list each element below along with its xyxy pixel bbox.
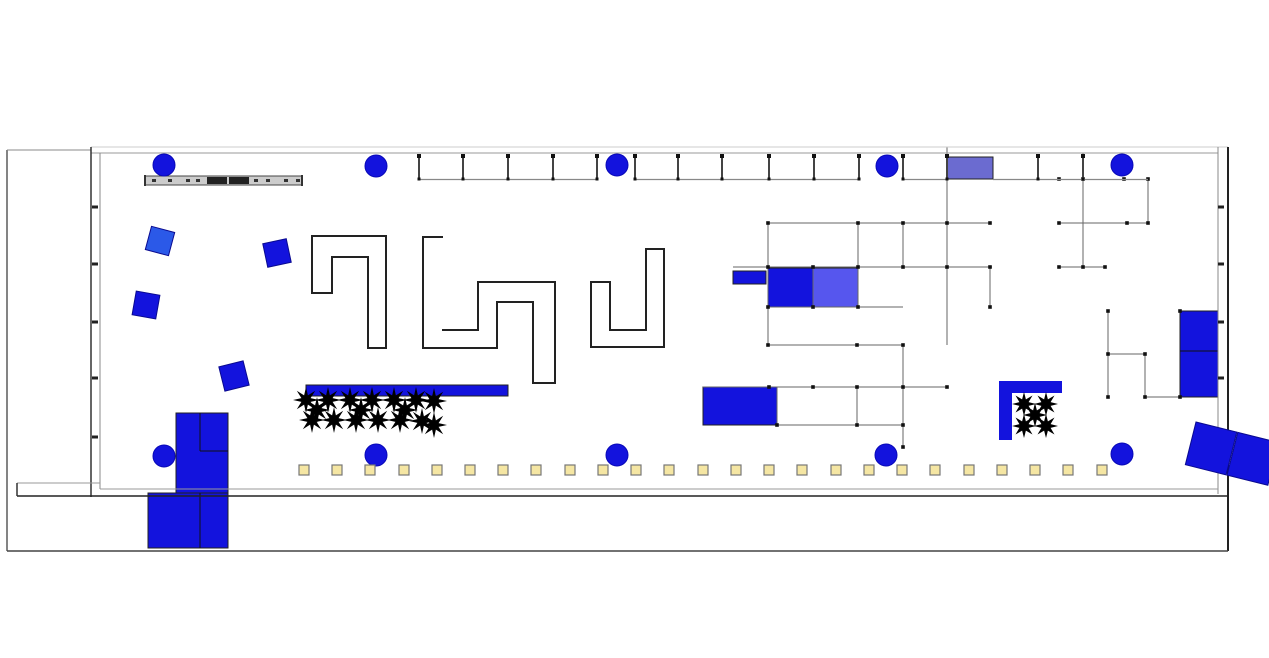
column-circle[interactable] xyxy=(153,154,175,176)
floor-plan-svg[interactable] xyxy=(0,0,1269,658)
service-bar-block xyxy=(229,177,249,184)
stall-tick-cap xyxy=(945,154,949,158)
yellow-marker xyxy=(365,465,375,475)
stall-tick-base xyxy=(813,178,816,181)
wall-tick xyxy=(1218,206,1224,209)
yellow-marker xyxy=(498,465,508,475)
grid-node xyxy=(1143,352,1147,356)
stall-tick-base xyxy=(418,178,421,181)
grid-node xyxy=(1125,221,1129,225)
wall-tick xyxy=(92,206,98,209)
planter-bar[interactable] xyxy=(999,381,1062,393)
yellow-marker xyxy=(1063,465,1073,475)
grid-node xyxy=(1106,395,1110,399)
yellow-marker xyxy=(964,465,974,475)
stall-tick-base xyxy=(507,178,510,181)
stall-tick-cap xyxy=(551,154,555,158)
stall-tick-cap xyxy=(595,154,599,158)
stall-tick-cap xyxy=(676,154,680,158)
column-circle[interactable] xyxy=(606,154,628,176)
yellow-marker xyxy=(797,465,807,475)
stall-tick-cap xyxy=(633,154,637,158)
grid-node xyxy=(1178,309,1182,313)
service-bar-endcap xyxy=(144,175,146,186)
stall-tick-cap xyxy=(417,154,421,158)
service-bar-tick xyxy=(186,179,190,182)
grid-node xyxy=(856,221,860,225)
column-circle[interactable] xyxy=(1111,154,1133,176)
booth-lower-blue[interactable] xyxy=(703,387,777,425)
yellow-marker xyxy=(565,465,575,475)
grid-node xyxy=(1106,309,1110,313)
service-bar-tick xyxy=(266,179,270,182)
yellow-marker xyxy=(531,465,541,475)
grid-node xyxy=(855,385,859,389)
wall-tick xyxy=(1218,263,1224,266)
grid-node xyxy=(855,423,859,427)
grid-node xyxy=(856,265,860,269)
yellow-marker xyxy=(731,465,741,475)
platform-bar[interactable] xyxy=(306,385,508,396)
rotated-square[interactable] xyxy=(132,291,160,319)
service-bar-tick xyxy=(254,179,258,182)
service-bar-tick xyxy=(284,179,288,182)
wall-tick xyxy=(92,321,98,324)
grid-node xyxy=(901,343,905,347)
rotated-square[interactable] xyxy=(145,226,174,255)
service-bar-endcap xyxy=(301,175,303,186)
service-bar-tick xyxy=(296,179,300,182)
stall-tick-base xyxy=(768,178,771,181)
grid-node xyxy=(988,305,992,309)
grid-node xyxy=(855,343,859,347)
plant-symbol xyxy=(348,397,374,423)
plant-symbol xyxy=(421,388,447,414)
yellow-marker xyxy=(930,465,940,475)
yellow-marker xyxy=(664,465,674,475)
wall-tick xyxy=(92,436,98,439)
column-circle[interactable] xyxy=(153,445,175,467)
grid-node xyxy=(1103,265,1107,269)
column-circle[interactable] xyxy=(1111,443,1133,465)
rotated-square[interactable] xyxy=(263,239,291,267)
yellow-marker xyxy=(1097,465,1107,475)
booth-light-blue[interactable] xyxy=(813,268,858,307)
stall-tick-base xyxy=(1037,178,1040,181)
stall-tick-base xyxy=(721,178,724,181)
stall-tick-base xyxy=(946,178,949,181)
yellow-marker xyxy=(698,465,708,475)
service-bar-tick xyxy=(168,179,172,182)
grid-node xyxy=(1143,395,1147,399)
grid-node xyxy=(766,305,770,309)
yellow-marker xyxy=(897,465,907,475)
booth-small-bar[interactable] xyxy=(733,271,766,284)
grid-node xyxy=(901,385,905,389)
column-circle[interactable] xyxy=(876,155,898,177)
grid-node xyxy=(945,265,949,269)
service-bar-tick xyxy=(152,179,156,182)
plant-symbol xyxy=(1023,403,1047,427)
grid-node xyxy=(811,265,815,269)
grid-node xyxy=(766,343,770,347)
stall-tick-base xyxy=(1082,178,1085,181)
service-bar-tick xyxy=(196,179,200,182)
plant-symbol xyxy=(304,397,330,423)
grid-node xyxy=(945,221,949,225)
yellow-marker xyxy=(1030,465,1040,475)
grid-node xyxy=(988,221,992,225)
wall-tick xyxy=(92,377,98,380)
floor-markers-layer xyxy=(299,465,1107,475)
wall-tick xyxy=(1218,321,1224,324)
plant-symbol xyxy=(421,412,447,438)
grid-node xyxy=(901,423,905,427)
maze-walls-layer xyxy=(312,236,664,383)
grid-node xyxy=(811,305,815,309)
yellow-marker xyxy=(831,465,841,475)
yellow-marker xyxy=(997,465,1007,475)
grid-node xyxy=(1057,265,1061,269)
stall-tick-base xyxy=(596,178,599,181)
column-circle[interactable] xyxy=(875,444,897,466)
grid-node xyxy=(1057,221,1061,225)
floor-plan xyxy=(0,0,1269,658)
stall-tick-cap xyxy=(506,154,510,158)
column-circle[interactable] xyxy=(606,444,628,466)
booth-purple[interactable] xyxy=(947,157,993,179)
yellow-marker xyxy=(432,465,442,475)
grid-node xyxy=(766,221,770,225)
yellow-marker xyxy=(864,465,874,475)
grid-node xyxy=(1146,221,1150,225)
column-circle[interactable] xyxy=(365,155,387,177)
yellow-marker xyxy=(299,465,309,475)
stall-tick-base xyxy=(677,178,680,181)
grid-node xyxy=(901,265,905,269)
booth-dark-blue[interactable] xyxy=(768,268,813,307)
grid-node xyxy=(811,385,815,389)
service-bar-block xyxy=(207,177,227,184)
grid-node xyxy=(901,221,905,225)
stall-ladders-layer xyxy=(417,154,1148,181)
stall-tick-base xyxy=(462,178,465,181)
entrance-block-lower[interactable] xyxy=(148,493,228,548)
grid-node xyxy=(901,445,905,449)
grid-node xyxy=(988,265,992,269)
stall-tick-cap xyxy=(1036,154,1040,158)
service-bar-layer xyxy=(144,175,303,186)
rotated-square[interactable] xyxy=(219,361,249,391)
stall-tick-base xyxy=(858,178,861,181)
grid-node xyxy=(1106,352,1110,356)
maze-wall xyxy=(312,236,386,348)
stall-tick-cap xyxy=(901,154,905,158)
grid-node xyxy=(767,385,771,389)
wall-tick xyxy=(92,263,98,266)
grid-node xyxy=(1178,395,1182,399)
grid-node xyxy=(856,305,860,309)
stall-tick-cap xyxy=(461,154,465,158)
stall-tick-cap xyxy=(720,154,724,158)
entrance-block-upper[interactable] xyxy=(176,413,228,493)
grid-node xyxy=(1081,265,1085,269)
yellow-marker xyxy=(764,465,774,475)
yellow-marker xyxy=(399,465,409,475)
stall-tick-cap xyxy=(767,154,771,158)
grid-node xyxy=(766,265,770,269)
plant-symbol xyxy=(392,397,418,423)
grid-node xyxy=(945,385,949,389)
stall-tick-cap xyxy=(1081,154,1085,158)
column-circle[interactable] xyxy=(365,444,387,466)
wall-tick xyxy=(1218,377,1224,380)
stall-tick-base xyxy=(634,178,637,181)
stall-tick-cap xyxy=(812,154,816,158)
stall-tick-cap xyxy=(857,154,861,158)
grid-node xyxy=(775,423,779,427)
booth-right-double[interactable] xyxy=(1180,311,1218,397)
stall-tick-base xyxy=(552,178,555,181)
yellow-marker xyxy=(631,465,641,475)
rotated-squares-layer xyxy=(132,226,291,391)
maze-wall xyxy=(423,237,555,383)
maze-wall xyxy=(591,249,664,347)
stall-tick-base xyxy=(902,178,905,181)
yellow-marker xyxy=(598,465,608,475)
yellow-marker xyxy=(332,465,342,475)
yellow-marker xyxy=(465,465,475,475)
